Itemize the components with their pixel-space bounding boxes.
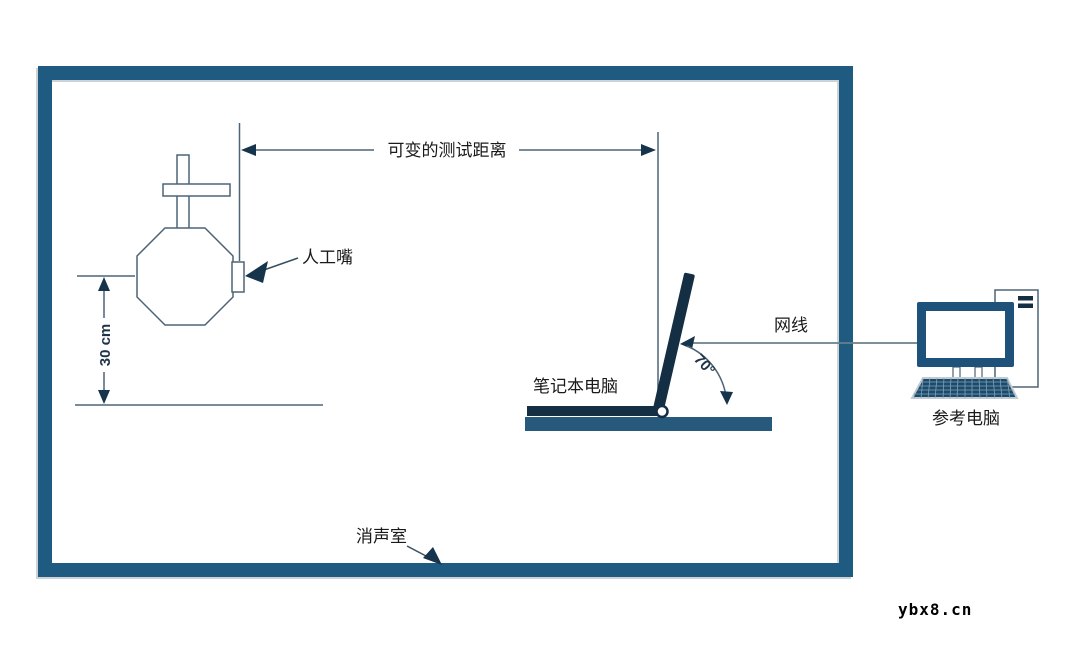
diagram-canvas: 可变的测试距离 人工嘴 30 cm 笔记本电脑 70° 网线: [0, 0, 1080, 647]
head-simulator-stand-crossbar: [163, 184, 230, 196]
laptop-hinge: [657, 406, 668, 417]
artificial-mouth-shape: [232, 262, 244, 292]
chamber-arrowhead-icon: [423, 547, 442, 565]
network-cable-label: 网线: [774, 316, 808, 335]
laptop-label: 笔记本电脑: [533, 377, 618, 396]
pc-tower-slot-1: [1018, 296, 1033, 301]
screen-angle-arrowhead-icon: [720, 391, 733, 405]
test-distance-label: 可变的测试距离: [388, 141, 507, 160]
dimension-arrowhead-left-icon: [241, 144, 256, 156]
reference-pc-label: 参考电脑: [932, 409, 1000, 428]
screen-angle-label: 70°: [690, 351, 718, 379]
head-simulator: [137, 155, 244, 325]
diagram-stage: 可变的测试距离 人工嘴 30 cm 笔记本电脑 70° 网线: [0, 0, 1080, 647]
pc-tower-slot-2: [1018, 304, 1033, 309]
mouth-height-label: 30 cm: [97, 324, 114, 367]
pc-monitor-screen: [926, 311, 1005, 358]
artificial-mouth-arrowhead-icon: [245, 261, 268, 283]
head-simulator-head-octagon: [137, 228, 233, 325]
chamber-callout-line: [407, 546, 426, 556]
laptop: [525, 272, 772, 431]
laptop-keyboard-base: [527, 406, 658, 416]
artificial-mouth-label: 人工嘴: [302, 248, 353, 267]
laptop-table-surface: [525, 417, 772, 431]
watermark: ybx8.cn: [898, 600, 972, 619]
dimension-arrowhead-right-icon: [641, 144, 656, 156]
anechoic-chamber-label: 消声室: [356, 527, 407, 546]
network-cable-arrowhead-icon: [680, 336, 695, 349]
reference-computer: [910, 290, 1038, 399]
height-arrowhead-down-icon: [98, 390, 110, 404]
height-arrowhead-up-icon: [98, 277, 110, 291]
